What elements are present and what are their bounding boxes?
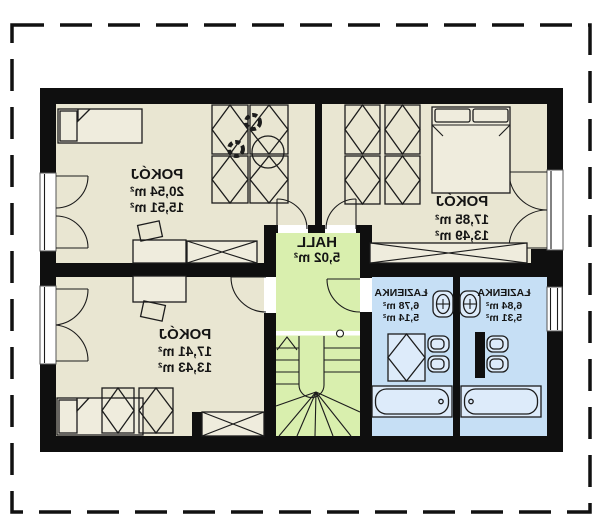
desk-icon [133, 240, 186, 263]
room-area: 5,31 m² [485, 312, 522, 324]
room-area: 5,02 m² [293, 250, 340, 265]
sink-icon [433, 291, 453, 317]
room-name: ŁAZIENKA [374, 287, 427, 299]
room-area: 13,43 m² [157, 360, 212, 375]
room-area: 6,78 m² [382, 300, 419, 312]
room-name: HALL [297, 234, 337, 251]
room-label: POKÓJ 17,85 m² 13,49 m² [434, 192, 489, 243]
desk-icon [133, 276, 186, 302]
bidet-icon [428, 356, 449, 372]
room-label: POKÓJ 17,41 m² 13,43 m² [157, 325, 212, 375]
room-area: 17,41 m² [157, 344, 212, 359]
stairs-threshold [276, 331, 360, 336]
room-area: 17,85 m² [434, 212, 489, 227]
closet-icon [202, 412, 264, 436]
room-area: 20,54 m² [129, 184, 184, 199]
bidet-icon [487, 356, 508, 372]
closet-icon [370, 243, 527, 263]
wall-stub-bottom-left [192, 412, 202, 436]
bathtub-icon [372, 386, 452, 417]
threshold [325, 225, 356, 233]
bed-icon [58, 109, 142, 143]
wall-stub-bathroom [475, 332, 485, 378]
room-label: HALL 5,02 m² [293, 234, 340, 265]
room-area: 6,84 m² [485, 300, 522, 312]
toilet-icon [487, 336, 508, 352]
cabinet-icon [388, 334, 425, 381]
threshold [278, 225, 308, 233]
sink-icon [460, 291, 480, 317]
closet-icon [187, 241, 257, 263]
room-area: 13,49 m² [434, 228, 489, 243]
room-name: POKÓJ [131, 165, 184, 183]
floor-plan-drawing: POKÓJ 20,54 m² 15,51 m² POKÓJ 17,85 m² 1… [0, 0, 600, 519]
threshold [264, 277, 276, 313]
room-label: POKÓJ 20,54 m² 15,51 m² [129, 165, 184, 215]
threshold [360, 278, 372, 312]
room-name: POKÓJ [159, 325, 212, 343]
room-name: POKÓJ [436, 192, 489, 210]
room-name: ŁAZIENKA [477, 287, 530, 299]
room-area: 5,14 m² [382, 312, 419, 324]
double-bed-icon [432, 107, 510, 193]
room-area: 15,51 m² [129, 200, 184, 215]
wall-jog [531, 249, 547, 263]
bathroom-window [547, 287, 562, 331]
bathtub-icon [461, 386, 541, 417]
toilet-icon [428, 336, 449, 352]
floor-plan: POKÓJ 20,54 m² 15,51 m² POKÓJ 17,85 m² 1… [0, 0, 600, 519]
